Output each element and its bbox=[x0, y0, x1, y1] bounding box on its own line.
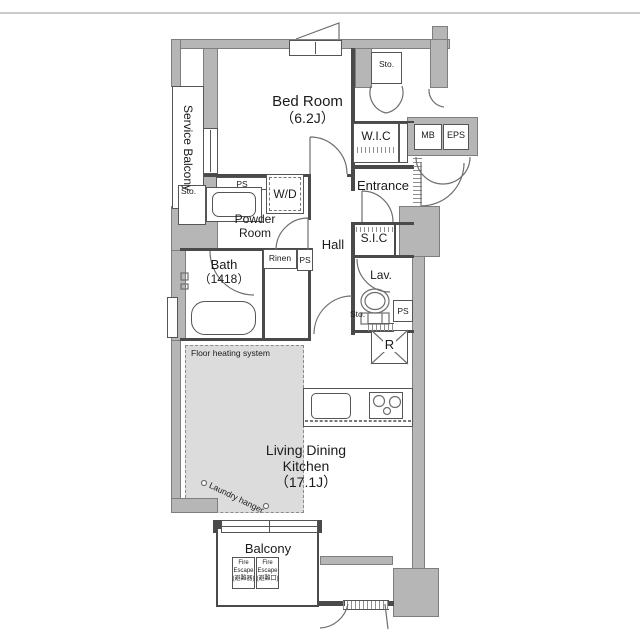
lav-label: Lav. bbox=[352, 268, 410, 282]
storage-lav-label: Sto. bbox=[350, 309, 372, 319]
eps-label: EPS bbox=[443, 130, 469, 141]
pipe-space-top-label: PS bbox=[216, 179, 268, 189]
bedroom-name: Bed Room bbox=[245, 93, 370, 110]
fire-escape-right-label: Fire Escape (避難口) bbox=[256, 559, 279, 583]
powder-room-line2: Room bbox=[215, 226, 295, 240]
page-top-divider bbox=[0, 12, 640, 14]
service-balcony-window-mullion bbox=[210, 130, 211, 172]
floor-heating-label: Floor heating system bbox=[191, 348, 303, 358]
wall-top-left bbox=[171, 39, 181, 87]
powder-room-label: Powder Room bbox=[215, 212, 295, 240]
fire-escape-left-label: Fire Escape (避難器) bbox=[232, 559, 255, 583]
pipe-space-lav-label: PS bbox=[393, 306, 413, 316]
storage-powder-label: Sto. bbox=[181, 186, 207, 196]
entrance-hall-door-arc bbox=[362, 191, 393, 222]
fire-escape-right-line2: Escape bbox=[256, 567, 279, 575]
wall-storage-left bbox=[355, 48, 372, 88]
fire-escape-left-line3: (避難器) bbox=[232, 575, 255, 583]
wall-entrance-sic bbox=[351, 222, 414, 225]
bath-name: Bath bbox=[186, 257, 262, 272]
entrance-threshold-hatch bbox=[413, 158, 422, 204]
bedroom-door-arc bbox=[310, 137, 347, 174]
fire-escape-left-line1: Fire bbox=[232, 559, 255, 567]
stove bbox=[369, 392, 403, 419]
wall-bath-bottom bbox=[180, 338, 311, 341]
lav-threshold-hatch bbox=[368, 323, 394, 332]
ldk-label: Living Dining Kitchen （17.1J） bbox=[243, 442, 369, 490]
main-entrance-door-arc bbox=[421, 163, 464, 206]
pipe-space-mid-label: PS bbox=[297, 255, 313, 265]
neighbor-door-arc bbox=[429, 89, 444, 107]
bedroom-window-mullion bbox=[315, 42, 316, 54]
porch-threshold-hatch bbox=[343, 600, 389, 610]
washer-dryer-label: W/D bbox=[266, 187, 304, 201]
balcony-label: Balcony bbox=[222, 541, 314, 556]
entrance-label: Entrance bbox=[352, 178, 414, 193]
wic-side-strip bbox=[399, 123, 408, 163]
wall-bottom-right-block bbox=[393, 568, 439, 617]
meter-box-door-arcs bbox=[416, 157, 470, 184]
wic-hanger-hatch bbox=[357, 147, 395, 153]
wall-porch-bottom-left bbox=[319, 601, 345, 606]
fire-escape-left-line2: Escape bbox=[232, 567, 255, 575]
hall-ldk-door-arc bbox=[314, 296, 352, 334]
wic-label: W.I.C bbox=[353, 129, 399, 143]
wall-porch-top bbox=[320, 556, 393, 565]
bathtub bbox=[191, 301, 256, 335]
ldk-area: （17.1J） bbox=[243, 474, 369, 490]
wall-powder-hall bbox=[308, 174, 311, 220]
fire-escape-right-line3: (避難口) bbox=[256, 575, 279, 583]
wall-right-upper bbox=[430, 39, 448, 88]
storage-top-label: Sto. bbox=[371, 59, 402, 69]
refrigerator-label: R bbox=[371, 337, 408, 352]
hall-label: Hall bbox=[310, 237, 356, 252]
kitchen-sink bbox=[311, 393, 351, 419]
awning-window-icon bbox=[296, 23, 339, 39]
bedroom-area: （6.2J） bbox=[245, 110, 370, 126]
sic-label: S.I.C bbox=[352, 231, 396, 245]
wall-top-right-stub bbox=[432, 26, 448, 40]
powder-room-line1: Powder bbox=[215, 212, 295, 226]
bedroom-label: Bed Room （6.2J） bbox=[245, 93, 370, 126]
wall-ldk-left bbox=[171, 340, 181, 500]
fire-escape-right-line1: Fire bbox=[256, 559, 279, 567]
balcony-window-mullion bbox=[269, 520, 270, 533]
counter-edge-dashed bbox=[305, 420, 411, 422]
ldk-line2: Kitchen bbox=[243, 458, 369, 474]
toilet-seat-icon bbox=[365, 293, 385, 310]
floor-plan: Service Balcony Bed Room （6.2J） Sto. W.I… bbox=[0, 0, 640, 630]
bath-label: Bath （1418） bbox=[186, 257, 262, 286]
linen-label: Rinen bbox=[263, 253, 297, 263]
bath-size: （1418） bbox=[186, 272, 262, 286]
wall-right-block bbox=[399, 206, 440, 257]
wall-right bbox=[412, 256, 425, 570]
storage-top-door-arcs bbox=[370, 86, 403, 113]
ldk-line1: Living Dining bbox=[243, 442, 369, 458]
wall-sic-lav bbox=[351, 255, 414, 258]
wall-entrance-top bbox=[351, 165, 414, 169]
refrigerator-letter: R bbox=[383, 337, 396, 352]
meter-box-label: MB bbox=[414, 130, 442, 141]
wall-left-step bbox=[171, 498, 218, 513]
bath-window bbox=[167, 297, 178, 338]
